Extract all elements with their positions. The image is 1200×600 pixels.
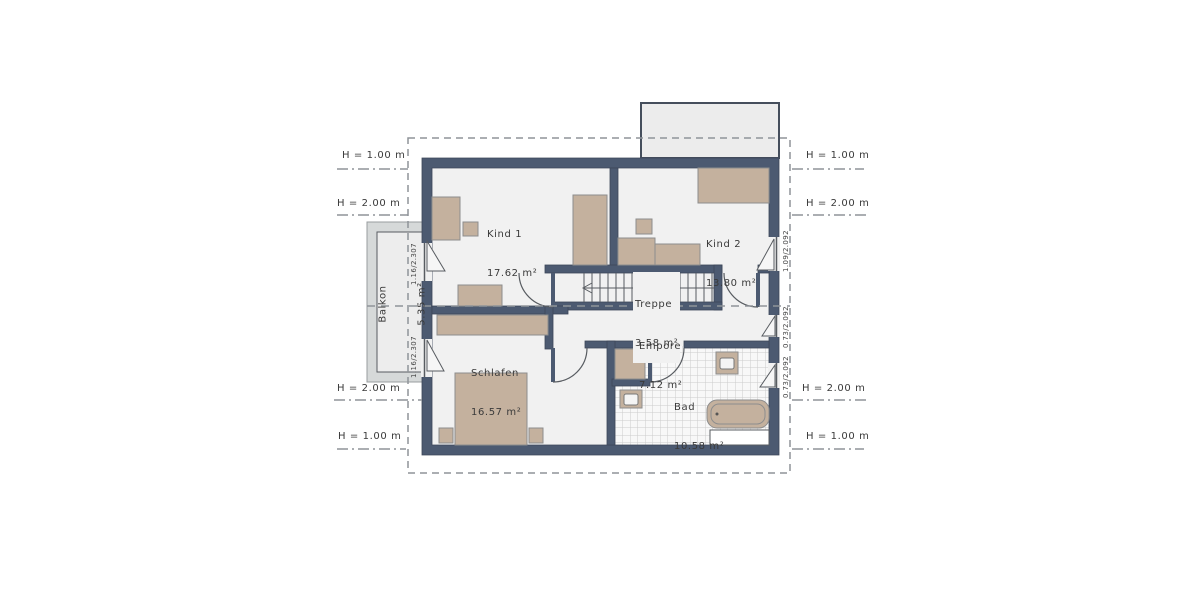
- height-marker-left-3: H = 2.00 m: [337, 383, 400, 394]
- room-label-balkon: Balkon 5.35 m²: [351, 282, 442, 325]
- room-name: Kind 1: [487, 228, 537, 241]
- window-dim-left-1: 1.16/2.307: [410, 243, 418, 285]
- room-name: Kind 2: [706, 238, 756, 251]
- kind1-bed: [432, 197, 460, 240]
- height-marker-right-3: H = 2.00 m: [802, 383, 865, 394]
- room-label-kind1: Kind 1 17.62 m²: [487, 202, 537, 293]
- window-dim-right-1: 1.09/2.092: [782, 230, 790, 272]
- room-label-kind2: Kind 2 13.80 m²: [706, 212, 756, 303]
- room-area: 17.62 m²: [487, 267, 537, 280]
- height-marker-left-2: H = 2.00 m: [337, 198, 400, 209]
- wall-empore-bottom-right: [684, 341, 769, 348]
- height-marker-right-1: H = 1.00 m: [806, 150, 869, 161]
- kind2-nightstand: [636, 219, 652, 234]
- room-area: 16.57 m²: [471, 406, 521, 419]
- window-dim-right-3: 0.73/2.092: [782, 356, 790, 398]
- room-name: Balkon: [377, 282, 390, 325]
- door-leaf-kind1: [551, 273, 555, 306]
- kind2-wardrobe: [698, 168, 769, 203]
- kind1-wardrobe: [573, 195, 607, 265]
- room-area: 5.35 m²: [416, 282, 429, 325]
- toilet-top-basin: [720, 358, 734, 369]
- room-area: 10.58 m²: [674, 440, 724, 453]
- height-marker-left-4: H = 1.00 m: [338, 431, 401, 442]
- toilet-left-basin: [624, 394, 638, 405]
- floor-plan-drawing: [0, 0, 1200, 600]
- door-leaf-kind2: [756, 273, 760, 307]
- kind1-nightstand: [463, 222, 478, 236]
- schlafen-wardrobe: [437, 315, 548, 335]
- schlafen-nightstand-left: [439, 428, 453, 443]
- room-name: Empore: [639, 340, 682, 353]
- floor-plan-canvas: Kind 1 17.62 m² Kind 2 13.80 m² Treppe 3…: [0, 0, 1200, 600]
- room-area: 13.80 m²: [706, 277, 756, 290]
- window-dim-left-2: 1.16/2.307: [410, 336, 418, 378]
- kind2-bed-part1: [618, 238, 655, 265]
- height-marker-right-2: H = 2.00 m: [806, 198, 869, 209]
- kind2-bed-part2: [655, 244, 700, 265]
- window-dim-right-2: 0.73/2.092: [782, 306, 790, 348]
- door-leaf-schlafen: [551, 348, 555, 382]
- height-marker-right-4: H = 1.00 m: [806, 431, 869, 442]
- room-name: Treppe: [635, 298, 678, 311]
- height-marker-left-1: H = 1.00 m: [342, 150, 405, 161]
- wall-kind1-kind2: [610, 168, 618, 267]
- dormer: [641, 103, 779, 158]
- room-label-schlafen: Schlafen 16.57 m²: [471, 341, 521, 432]
- wall-schlafen-bad: [607, 341, 615, 445]
- schlafen-nightstand-right: [529, 428, 543, 443]
- room-name: Schlafen: [471, 367, 521, 380]
- room-name: Bad: [674, 401, 724, 414]
- room-label-bad: Bad 10.58 m²: [674, 375, 724, 466]
